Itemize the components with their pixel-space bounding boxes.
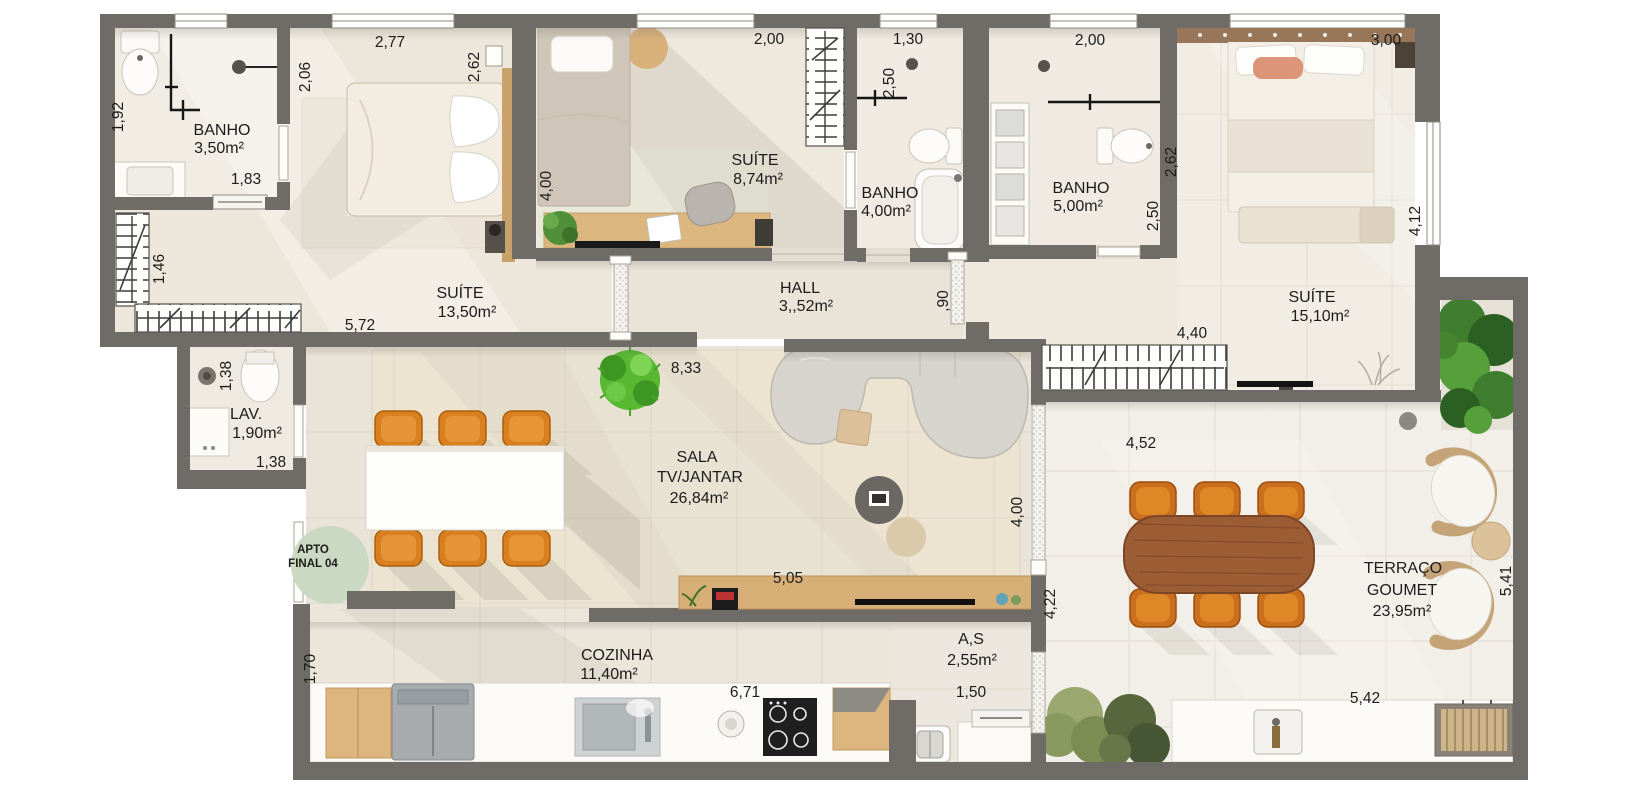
svg-text:11,40m²: 11,40m² <box>580 666 638 683</box>
svg-text:2,50: 2,50 <box>1145 201 1162 232</box>
svg-text:BANHO: BANHO <box>194 122 251 139</box>
svg-text:BANHO: BANHO <box>1053 180 1110 197</box>
svg-text:4,40: 4,40 <box>1177 325 1208 342</box>
svg-text:2,55m²: 2,55m² <box>947 652 997 669</box>
svg-text:2,77: 2,77 <box>375 34 405 51</box>
svg-text:SUÍTE: SUÍTE <box>1288 287 1335 306</box>
svg-text:5,42: 5,42 <box>1350 690 1380 707</box>
svg-text:1,83: 1,83 <box>231 171 261 188</box>
svg-text:8,74m²: 8,74m² <box>733 171 783 188</box>
svg-text:3,00: 3,00 <box>1371 32 1402 49</box>
svg-text:3,,52m²: 3,,52m² <box>779 298 834 315</box>
svg-text:BANHO: BANHO <box>862 185 919 202</box>
svg-text:1,92: 1,92 <box>110 102 127 132</box>
svg-text:4,00: 4,00 <box>1009 497 1026 528</box>
svg-text:6,71: 6,71 <box>730 684 760 701</box>
svg-text:COZINHA: COZINHA <box>581 647 653 664</box>
svg-text:5,41: 5,41 <box>1498 566 1515 596</box>
svg-text:26,84m²: 26,84m² <box>670 490 729 507</box>
svg-text:4,22: 4,22 <box>1042 589 1059 619</box>
svg-text:1,50: 1,50 <box>956 684 987 701</box>
svg-text:1,30: 1,30 <box>893 31 924 48</box>
svg-text:2,00: 2,00 <box>754 31 785 48</box>
svg-text:5,72: 5,72 <box>345 317 375 334</box>
svg-text:TV/JANTAR: TV/JANTAR <box>657 469 743 486</box>
svg-text:4,00m²: 4,00m² <box>861 203 911 220</box>
svg-text:5,00m²: 5,00m² <box>1053 198 1103 215</box>
svg-text:4,12: 4,12 <box>1407 206 1424 236</box>
svg-text:23,95m²: 23,95m² <box>1373 603 1432 620</box>
svg-text:1,90m²: 1,90m² <box>232 425 282 442</box>
svg-text:1,38: 1,38 <box>218 361 235 391</box>
svg-text:SUÍTE: SUÍTE <box>731 150 778 169</box>
svg-text:1,70: 1,70 <box>302 654 319 685</box>
svg-text:,90: ,90 <box>935 290 952 312</box>
svg-text:2,62: 2,62 <box>466 52 483 82</box>
svg-text:13,50m²: 13,50m² <box>438 304 497 321</box>
svg-text:4,52: 4,52 <box>1126 435 1156 452</box>
svg-text:5,05: 5,05 <box>773 570 803 587</box>
svg-text:SUÍTE: SUÍTE <box>436 283 483 302</box>
svg-text:2,00: 2,00 <box>1075 32 1106 49</box>
svg-text:1,46: 1,46 <box>151 254 168 284</box>
svg-text:2,50: 2,50 <box>881 68 898 99</box>
svg-text:4,00: 4,00 <box>538 171 555 202</box>
svg-text:8,33: 8,33 <box>671 360 701 377</box>
svg-text:A,S: A,S <box>958 631 984 648</box>
svg-text:TERRAÇO: TERRAÇO <box>1364 560 1442 577</box>
svg-text:LAV.: LAV. <box>230 406 262 423</box>
svg-text:3,50m²: 3,50m² <box>194 140 244 157</box>
svg-text:SALA: SALA <box>677 449 718 466</box>
svg-text:2,62: 2,62 <box>1163 147 1180 177</box>
svg-text:2,06: 2,06 <box>297 62 314 92</box>
svg-text:GOUMET: GOUMET <box>1367 582 1437 599</box>
svg-text:HALL: HALL <box>780 280 820 297</box>
svg-text:15,10m²: 15,10m² <box>1291 308 1350 325</box>
svg-text:FINAL 04: FINAL 04 <box>288 558 338 570</box>
svg-text:APTO: APTO <box>297 544 329 556</box>
svg-text:1,38: 1,38 <box>256 454 286 471</box>
